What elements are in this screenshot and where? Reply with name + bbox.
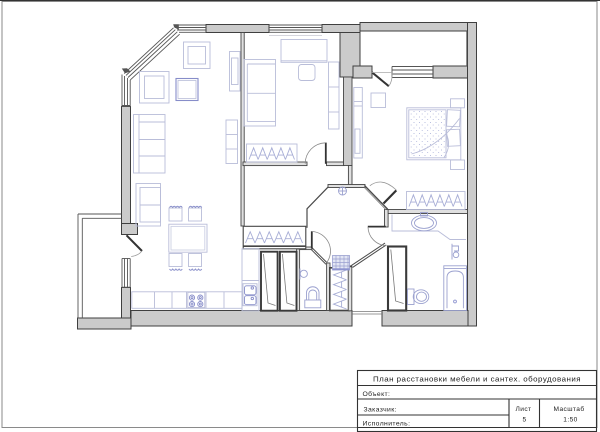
svg-text:Лист: Лист — [516, 406, 532, 413]
svg-text:Заказчик:: Заказчик: — [364, 407, 397, 414]
svg-text:5: 5 — [522, 417, 526, 424]
svg-text:План расстановки мебели и сант: План расстановки мебели и сантех. оборуд… — [373, 376, 581, 384]
svg-text:Объект:: Объект: — [363, 390, 391, 398]
svg-text:Масштаб: Масштаб — [553, 405, 584, 413]
svg-text:1:50: 1:50 — [563, 417, 577, 424]
svg-text:Исполнитель:: Исполнитель: — [363, 421, 411, 428]
